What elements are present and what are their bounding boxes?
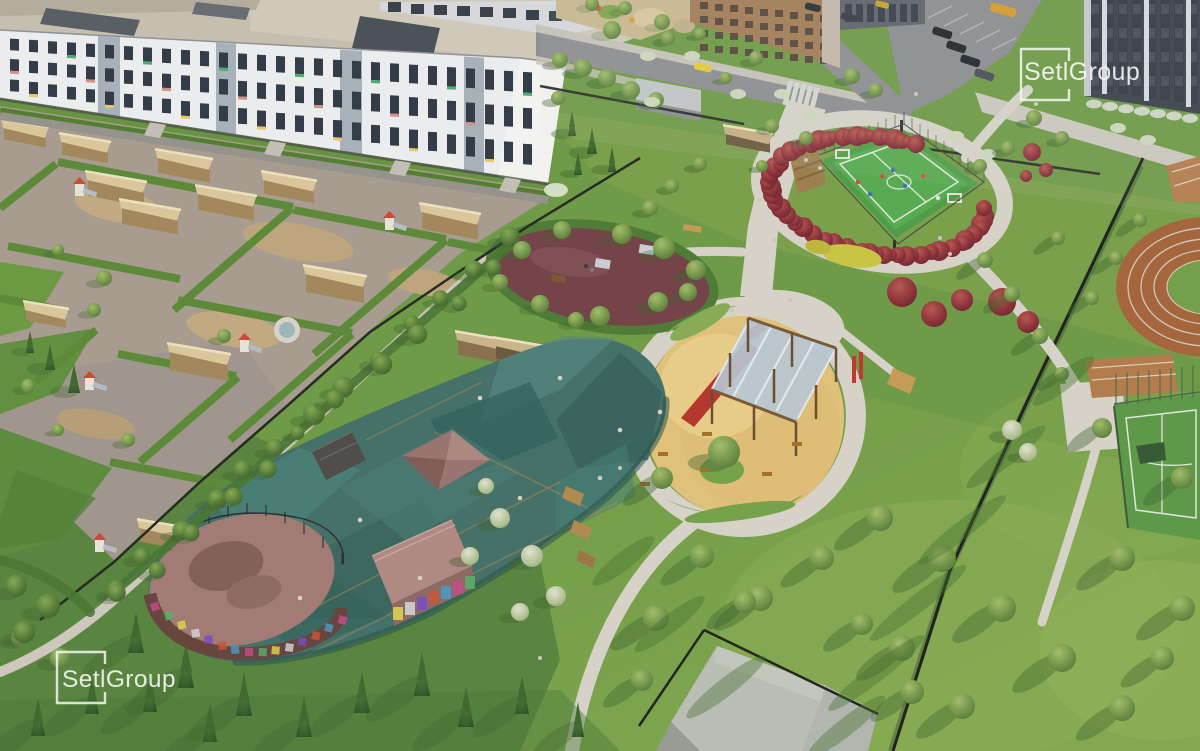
svg-text:SetlGroup: SetlGroup: [1024, 58, 1140, 86]
svg-text:SetlGroup: SetlGroup: [62, 666, 176, 693]
